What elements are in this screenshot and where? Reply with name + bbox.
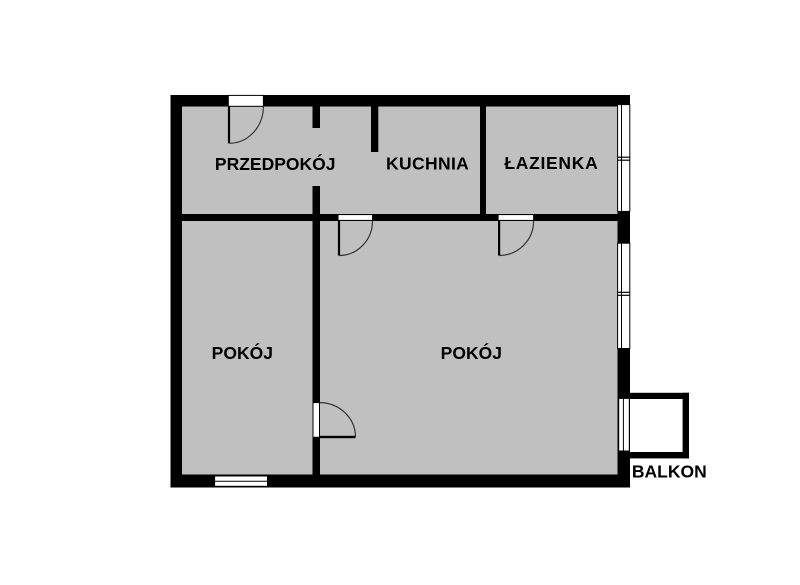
svg-text:POKÓJ: POKÓJ — [441, 342, 502, 363]
svg-text:BALKON: BALKON — [632, 462, 707, 482]
svg-text:ŁAZIENKA: ŁAZIENKA — [504, 153, 598, 173]
svg-text:PRZEDPOKÓJ: PRZEDPOKÓJ — [215, 153, 336, 174]
svg-text:KUCHNIA: KUCHNIA — [386, 153, 469, 173]
svg-text:POKÓJ: POKÓJ — [212, 342, 273, 363]
